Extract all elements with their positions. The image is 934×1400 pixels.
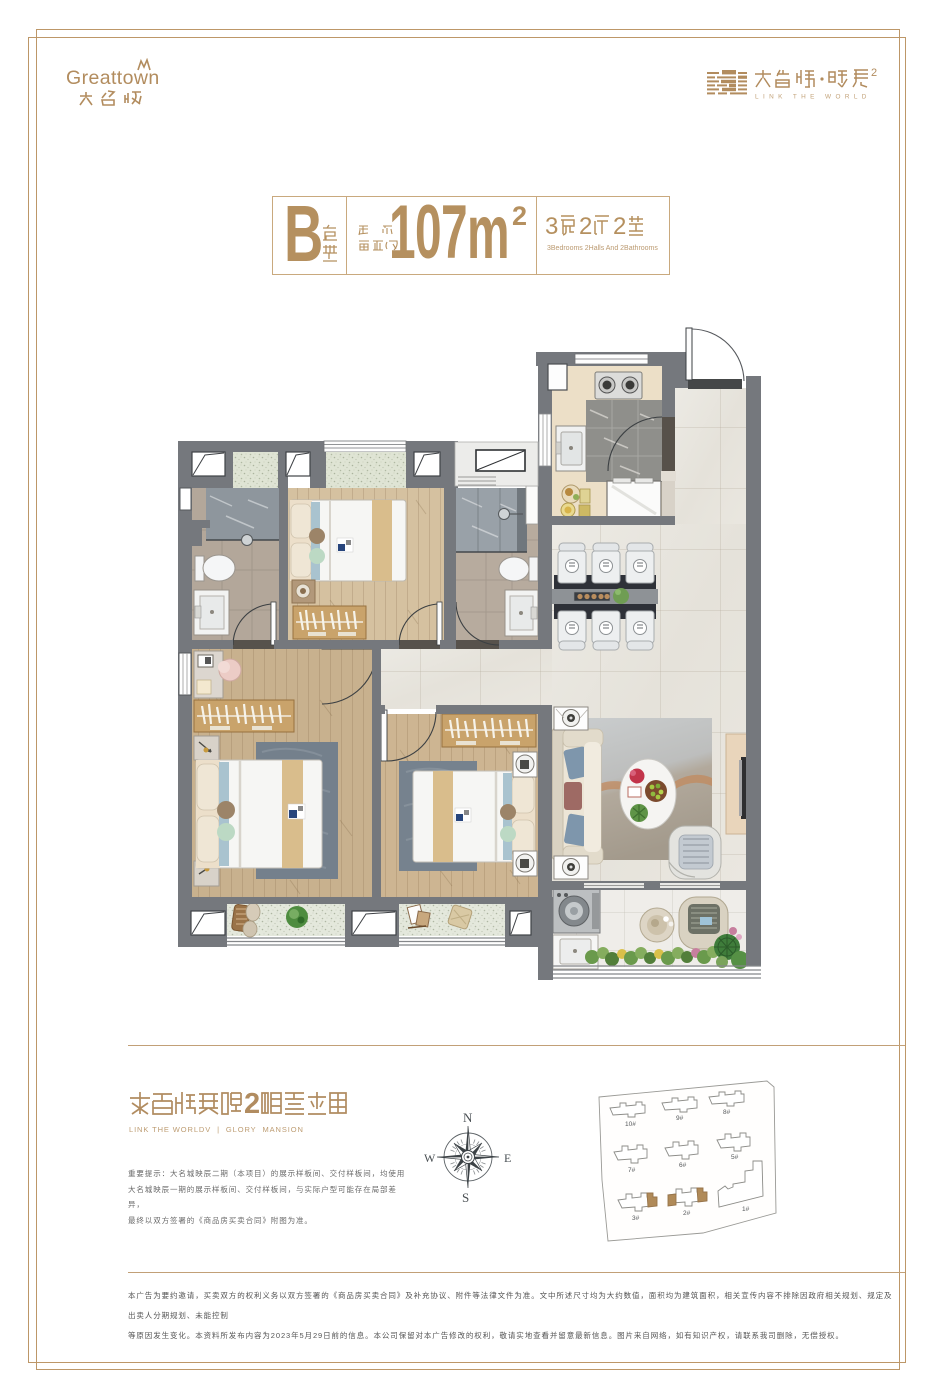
svg-text:N: N [463, 1110, 473, 1125]
svg-text:9#: 9# [676, 1115, 684, 1122]
svg-text:E: E [504, 1151, 511, 1165]
svg-text:10#: 10# [625, 1121, 636, 1128]
svg-text:7#: 7# [628, 1167, 636, 1174]
svg-text:1#: 1# [742, 1206, 750, 1213]
svg-text:2: 2 [244, 1089, 260, 1117]
svg-text:8#: 8# [723, 1109, 731, 1116]
svg-text:2#: 2# [683, 1210, 691, 1217]
svg-text:5#: 5# [731, 1154, 739, 1161]
svg-text:S: S [462, 1190, 469, 1204]
svg-text:6#: 6# [679, 1162, 687, 1169]
svg-text:3#: 3# [632, 1215, 640, 1222]
svg-text:W: W [424, 1151, 436, 1165]
